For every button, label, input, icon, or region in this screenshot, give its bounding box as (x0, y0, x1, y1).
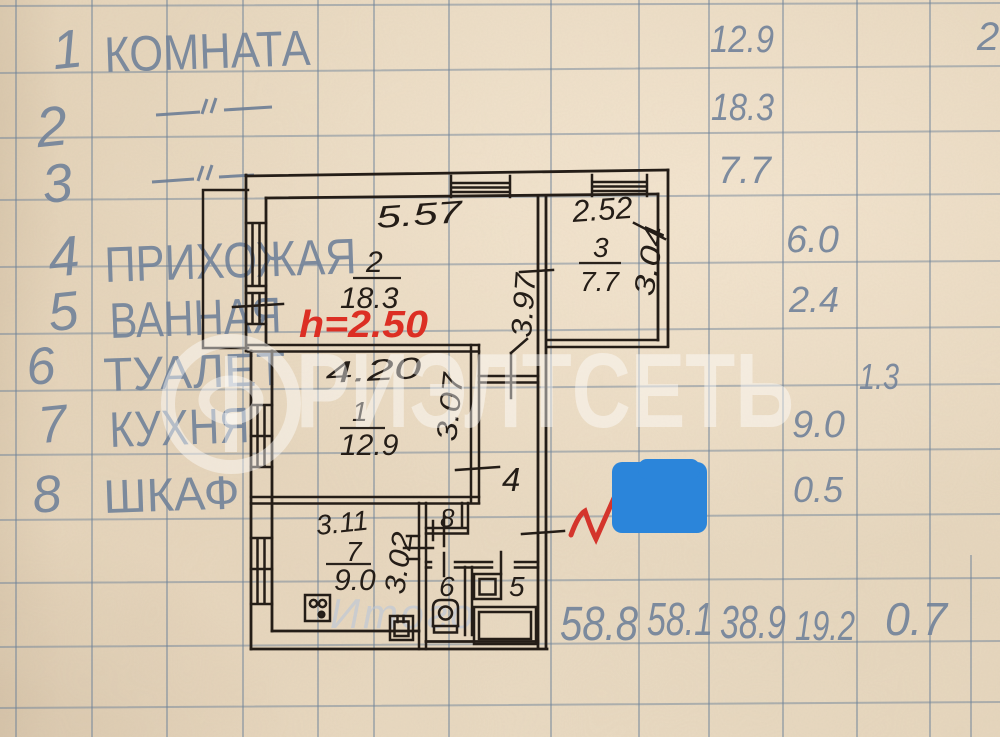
svg-text:3: 3 (593, 232, 609, 263)
svg-text:2: 2 (32, 93, 71, 159)
svg-text:4: 4 (45, 223, 83, 289)
svg-text:ПРИХОЖАЯ: ПРИХОЖАЯ (103, 228, 357, 293)
svg-text:58.8: 58.8 (560, 598, 638, 651)
svg-text:7: 7 (346, 536, 363, 567)
svg-text:1.3: 1.3 (859, 356, 899, 397)
svg-text:0.7: 0.7 (885, 593, 948, 645)
svg-text:6: 6 (23, 336, 58, 397)
svg-text:1: 1 (49, 18, 85, 81)
svg-text:4: 4 (502, 461, 520, 498)
svg-text:8: 8 (440, 503, 455, 533)
svg-text:ШКАФ: ШКАФ (103, 465, 241, 523)
svg-text:6.0: 6.0 (786, 219, 839, 261)
svg-text:7.7: 7.7 (580, 266, 620, 297)
svg-text:19.2: 19.2 (795, 602, 855, 649)
svg-text:2.52: 2.52 (570, 190, 634, 229)
svg-text:5.57: 5.57 (375, 194, 466, 235)
svg-text:3: 3 (39, 152, 75, 215)
svg-text:7.7: 7.7 (718, 150, 773, 192)
svg-text:9.0: 9.0 (792, 404, 845, 446)
svg-text:5: 5 (509, 571, 525, 602)
svg-text:2: 2 (976, 15, 999, 59)
svg-text:18.3: 18.3 (711, 87, 774, 129)
svg-text:58.1: 58.1 (647, 593, 713, 645)
svg-text:8: 8 (29, 464, 64, 525)
svg-text:3.97: 3.97 (506, 270, 543, 338)
svg-text:0.5: 0.5 (793, 469, 844, 510)
svg-text:КОМНАТА: КОМНАТА (103, 20, 311, 83)
svg-text:РИЭЛТСЕТЬ: РИЭЛТСЕТЬ (296, 332, 794, 450)
svg-text:12.9: 12.9 (710, 19, 774, 61)
svg-text:9.0: 9.0 (334, 564, 376, 597)
svg-text:2: 2 (365, 246, 383, 279)
svg-text:6: 6 (439, 571, 455, 602)
svg-text:2.4: 2.4 (788, 279, 839, 320)
svg-text:38.9: 38.9 (720, 596, 786, 648)
